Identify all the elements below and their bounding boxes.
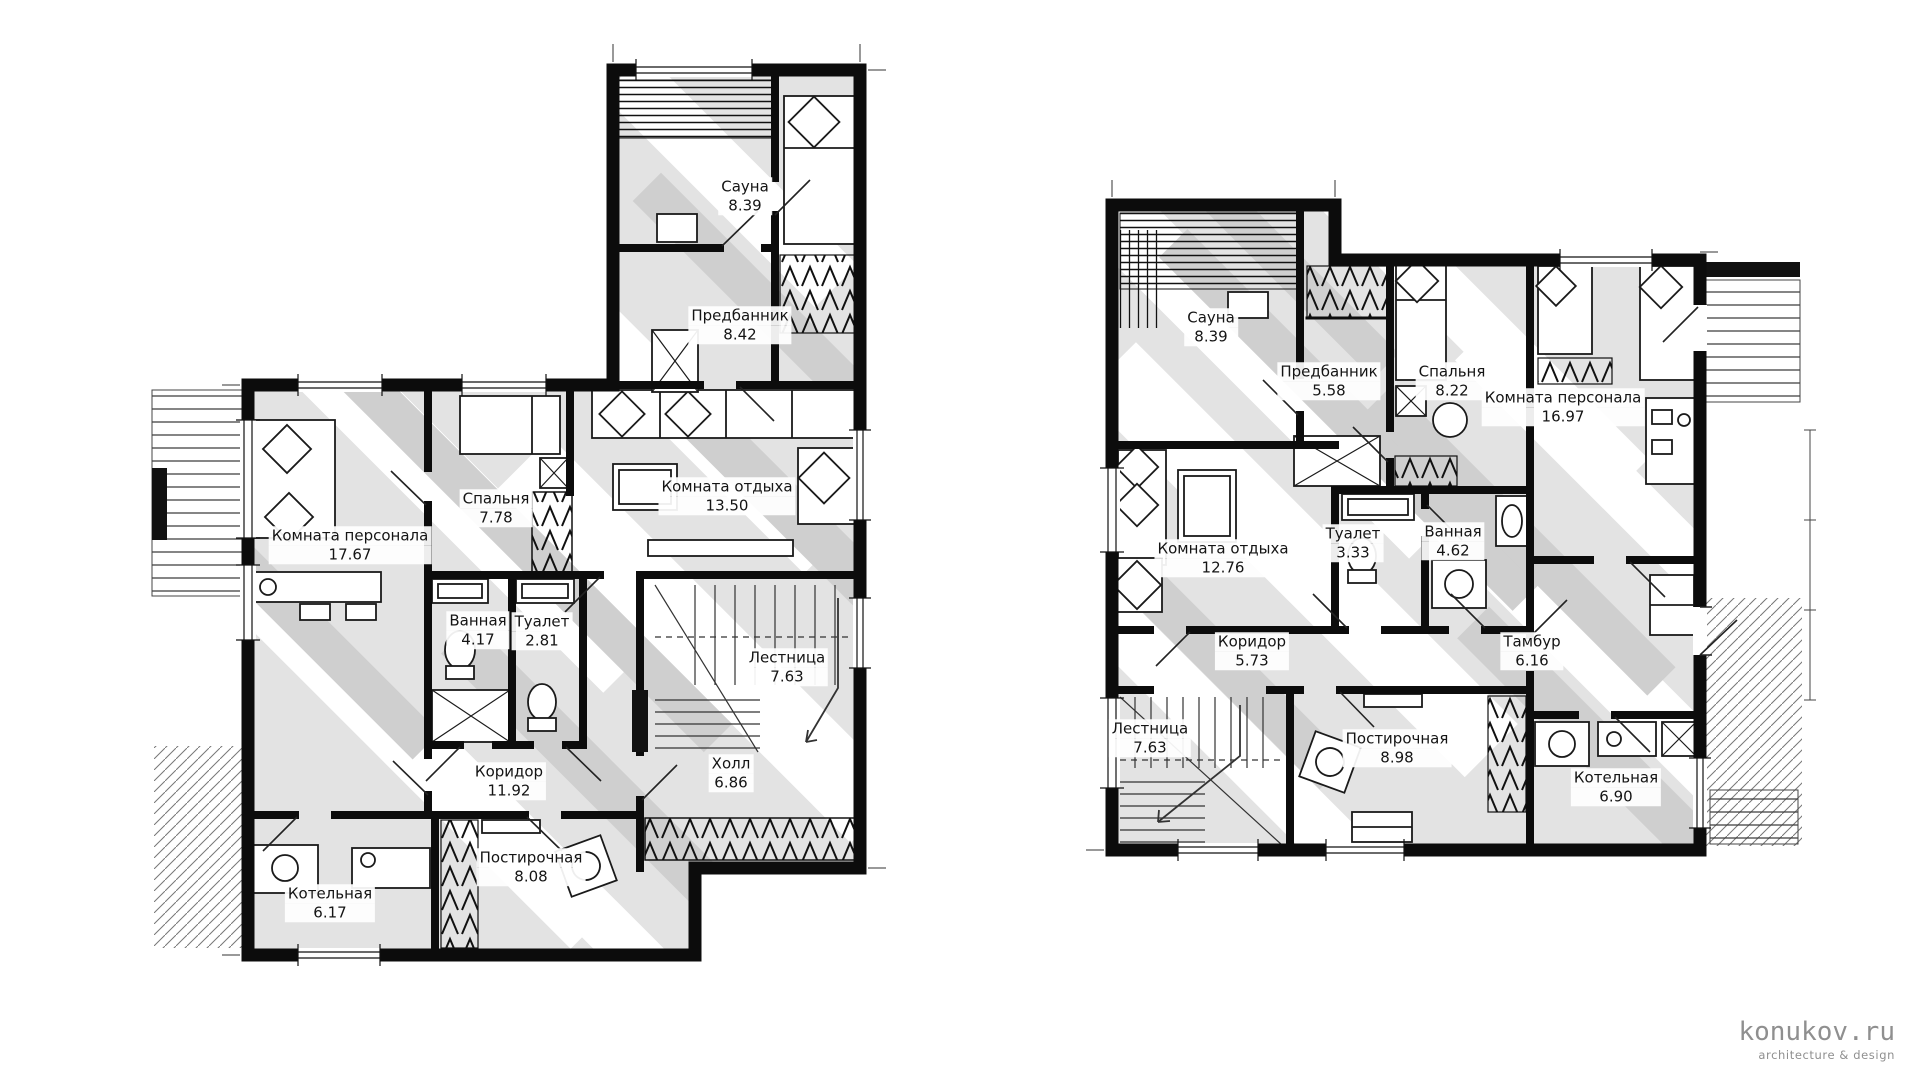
laundry-sink [1364, 694, 1422, 707]
dimension-line [1804, 430, 1816, 700]
tv-console [648, 540, 793, 556]
floor-plans-drawing [0, 0, 1920, 1080]
sink [260, 579, 276, 595]
floor-plan-canvas: Сауна8.39 Предбанник8.42 Комната персона… [0, 0, 1920, 1080]
chair [1433, 403, 1467, 437]
toilet [1348, 538, 1376, 574]
toilet [528, 684, 556, 720]
plan1-exterior-stair [152, 390, 244, 948]
bed [460, 396, 560, 454]
sauna-bench [657, 214, 697, 242]
sauna-bench [1228, 292, 1268, 318]
plan2-exterior [1705, 262, 1816, 846]
toilet [445, 631, 475, 669]
